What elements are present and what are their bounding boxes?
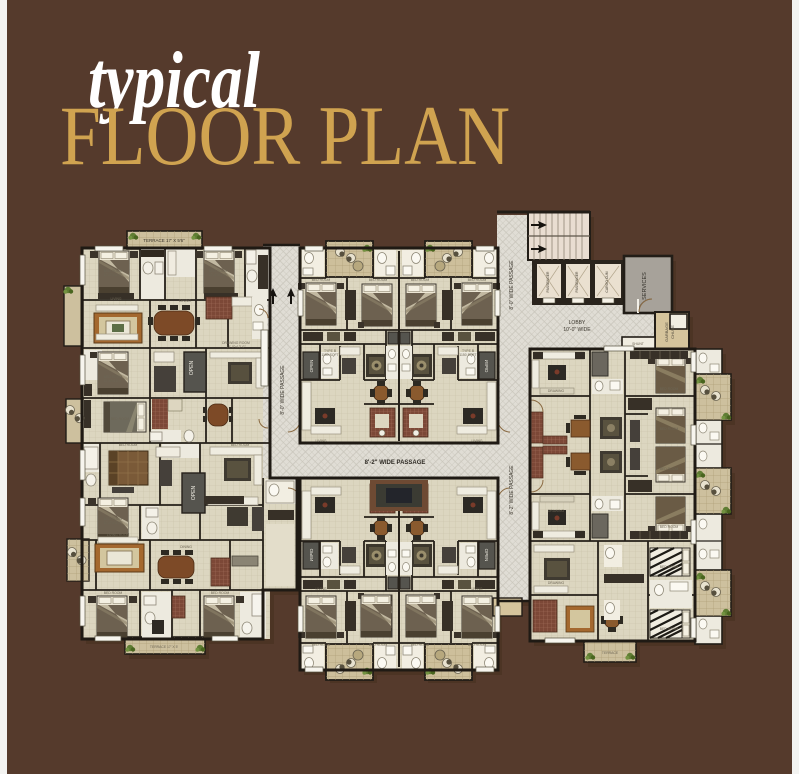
svg-text:1150 SQFT: 1150 SQFT	[321, 353, 338, 357]
svg-text:LOBBY: LOBBY	[569, 320, 586, 326]
svg-text:DINING: DINING	[179, 299, 191, 303]
svg-text:LIVING: LIVING	[471, 587, 482, 591]
svg-text:CARGO CUM: CARGO CUM	[605, 271, 609, 292]
svg-text:BED ROOM: BED ROOM	[312, 643, 331, 647]
svg-text:BED ROOM: BED ROOM	[660, 627, 679, 631]
svg-text:DRAWING: DRAWING	[548, 509, 565, 513]
svg-text:DINING: DINING	[180, 545, 192, 549]
svg-text:BED ROOM: BED ROOM	[211, 591, 230, 595]
svg-text:8'-2" WIDE PASSAGE: 8'-2" WIDE PASSAGE	[365, 460, 426, 466]
svg-text:LIVING: LIVING	[315, 587, 326, 591]
svg-text:OPEN: OPEN	[309, 360, 314, 373]
svg-text:1150 SQFT: 1150 SQFT	[459, 353, 476, 357]
svg-text:BED ROOM: BED ROOM	[660, 565, 679, 569]
svg-text:TERRACE 17' X 5'6": TERRACE 17' X 5'6"	[143, 238, 185, 243]
svg-text:PASSENGER: PASSENGER	[546, 271, 550, 292]
svg-text:12'-6"x10'-0": 12'-6"x10'-0"	[104, 379, 124, 383]
svg-text:GARBAGE: GARBAGE	[664, 322, 669, 342]
svg-text:CHUTE: CHUTE	[670, 325, 675, 339]
svg-text:SHUNT: SHUNT	[632, 342, 644, 346]
svg-text:BED ROOM: BED ROOM	[231, 443, 250, 447]
svg-text:DRAWING: DRAWING	[548, 581, 565, 585]
svg-text:BED ROOM: BED ROOM	[660, 525, 679, 529]
svg-text:14'-0"x12'-0": 14'-0"x12'-0"	[227, 345, 247, 349]
svg-text:LIVING: LIVING	[110, 297, 121, 301]
svg-text:12'-0"x11'-0": 12'-0"x11'-0"	[104, 521, 124, 525]
svg-text:BED ROOM: BED ROOM	[312, 278, 331, 282]
svg-text:OPEN: OPEN	[191, 486, 197, 501]
svg-text:OPEN: OPEN	[189, 361, 195, 376]
svg-text:BED ROOM: BED ROOM	[369, 278, 388, 282]
svg-text:12'-0"x11'-0": 12'-0"x11'-0"	[209, 273, 229, 277]
svg-text:BED ROOM: BED ROOM	[660, 387, 679, 391]
svg-text:DRAWING: DRAWING	[548, 389, 565, 393]
svg-text:8'-0" WIDE PASSAGE: 8'-0" WIDE PASSAGE	[509, 260, 515, 310]
svg-text:10'-0" WIDE: 10'-0" WIDE	[563, 327, 591, 333]
svg-text:TERRACE: TERRACE	[602, 651, 619, 655]
svg-text:12'-0"x11'-0": 12'-0"x11'-0"	[104, 273, 124, 277]
svg-text:TERRACE 17' X 5': TERRACE 17' X 5'	[150, 645, 179, 649]
svg-text:BED ROOM: BED ROOM	[104, 591, 123, 595]
svg-text:BED ROOM: BED ROOM	[111, 417, 130, 421]
svg-text:BED ROOM: BED ROOM	[369, 643, 388, 647]
svg-text:8'-0" WIDE PASSAGE: 8'-0" WIDE PASSAGE	[280, 365, 286, 415]
svg-text:BED ROOM: BED ROOM	[119, 443, 138, 447]
svg-text:BED ROOM: BED ROOM	[660, 467, 679, 471]
svg-text:BED ROOM: BED ROOM	[468, 643, 487, 647]
svg-text:BED ROOM: BED ROOM	[660, 427, 679, 431]
svg-text:8'-2" WIDE PASSAGE: 8'-2" WIDE PASSAGE	[509, 465, 515, 515]
svg-text:BED ROOM: BED ROOM	[411, 643, 430, 647]
svg-text:FLOOR PLAN: FLOOR PLAN	[60, 89, 510, 183]
svg-text:BED ROOM: BED ROOM	[468, 278, 487, 282]
svg-text:LIVING ROOM: LIVING ROOM	[107, 533, 130, 537]
svg-text:PASSENGER: PASSENGER	[575, 271, 579, 292]
svg-text:BED ROOM: BED ROOM	[411, 278, 430, 282]
svg-text:SERVICES: SERVICES	[642, 272, 648, 300]
